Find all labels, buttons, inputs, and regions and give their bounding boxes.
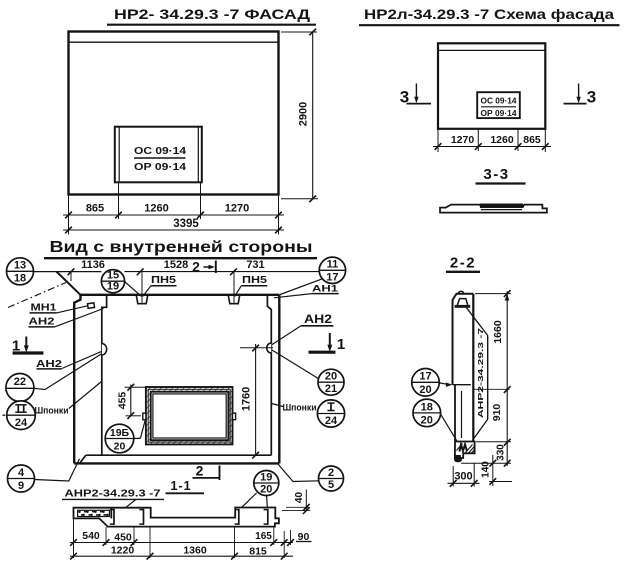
svg-text:Шпонки: Шпонки [35, 405, 69, 416]
svg-text:5: 5 [328, 479, 334, 491]
svg-text:2: 2 [196, 463, 204, 479]
svg-text:13: 13 [14, 260, 26, 272]
svg-text:НР2- 34.29.3 -7 ФАСАД: НР2- 34.29.3 -7 ФАСАД [114, 6, 310, 22]
svg-text:865: 865 [523, 134, 541, 146]
svg-text:АН2: АН2 [29, 317, 56, 328]
svg-text:АНР2-34.29.3 -7: АНР2-34.29.3 -7 [476, 328, 485, 418]
svg-text:22: 22 [14, 376, 26, 388]
svg-text:Шпонки: Шпонки [283, 403, 317, 414]
svg-text:731: 731 [246, 259, 264, 271]
svg-text:17: 17 [326, 271, 338, 283]
svg-text:165: 165 [255, 531, 272, 542]
svg-text:17: 17 [419, 371, 431, 383]
svg-text:19: 19 [107, 281, 119, 293]
svg-text:20: 20 [260, 483, 272, 495]
svg-text:20: 20 [421, 415, 433, 427]
svg-text:1528: 1528 [164, 259, 188, 271]
svg-text:1260: 1260 [490, 134, 514, 146]
svg-text:18: 18 [421, 401, 433, 413]
svg-text:20: 20 [114, 441, 126, 453]
svg-text:1270: 1270 [451, 134, 475, 146]
svg-text:ПН5: ПН5 [242, 275, 268, 286]
svg-text:19: 19 [260, 471, 272, 483]
svg-text:Вид с внутренней стороны: Вид с внутренней стороны [50, 239, 313, 256]
svg-text:300: 300 [454, 471, 472, 483]
svg-text:3395: 3395 [173, 218, 199, 230]
svg-text:1-1: 1-1 [170, 479, 191, 493]
svg-text:1136: 1136 [81, 259, 105, 271]
svg-text:ОР 09·14: ОР 09·14 [134, 161, 186, 173]
svg-text:450: 450 [114, 532, 132, 544]
svg-text:18: 18 [14, 273, 26, 285]
svg-text:3-3: 3-3 [483, 166, 509, 183]
svg-text:2-2: 2-2 [450, 255, 476, 272]
svg-text:1220: 1220 [111, 545, 135, 557]
svg-text:1660: 1660 [492, 320, 504, 344]
svg-text:19Б: 19Б [110, 427, 130, 439]
svg-text:3: 3 [587, 88, 596, 107]
svg-text:20: 20 [325, 371, 337, 383]
svg-text:330: 330 [496, 444, 507, 461]
svg-text:ОС 09·14: ОС 09·14 [481, 97, 518, 106]
svg-text:4: 4 [18, 467, 25, 479]
svg-text:21: 21 [325, 383, 337, 395]
svg-text:1360: 1360 [183, 545, 207, 557]
svg-text:455: 455 [116, 392, 128, 410]
svg-text:9: 9 [18, 480, 24, 492]
svg-text:1270: 1270 [225, 203, 249, 215]
svg-text:МН1: МН1 [31, 303, 58, 314]
svg-text:2: 2 [328, 467, 334, 479]
svg-text:ПН5: ПН5 [151, 275, 177, 286]
svg-text:1760: 1760 [240, 387, 252, 411]
svg-text:2900: 2900 [297, 102, 309, 126]
svg-text:815: 815 [249, 546, 267, 558]
svg-text:АНР2-34.29.3 -7: АНР2-34.29.3 -7 [65, 487, 161, 499]
svg-text:ОР 09·14: ОР 09·14 [481, 109, 518, 118]
svg-text:ОС 09·14: ОС 09·14 [134, 145, 186, 157]
svg-text:865: 865 [86, 203, 104, 215]
svg-text:НР2л-34.29.3 -7 Схема фаса: НР2л-34.29.3 -7 Схема фасада [364, 6, 614, 22]
svg-text:40: 40 [294, 492, 305, 504]
svg-text:20: 20 [419, 384, 431, 396]
svg-text:910: 910 [491, 404, 503, 422]
svg-text:2: 2 [192, 259, 200, 275]
svg-text:540: 540 [82, 530, 100, 542]
svg-text:11: 11 [327, 259, 339, 271]
svg-text:140: 140 [481, 461, 492, 478]
svg-text:24: 24 [325, 415, 338, 427]
svg-text:АН2: АН2 [304, 314, 332, 326]
svg-text:24: 24 [15, 417, 28, 429]
svg-text:1260: 1260 [144, 203, 168, 215]
svg-text:1: 1 [337, 336, 345, 353]
